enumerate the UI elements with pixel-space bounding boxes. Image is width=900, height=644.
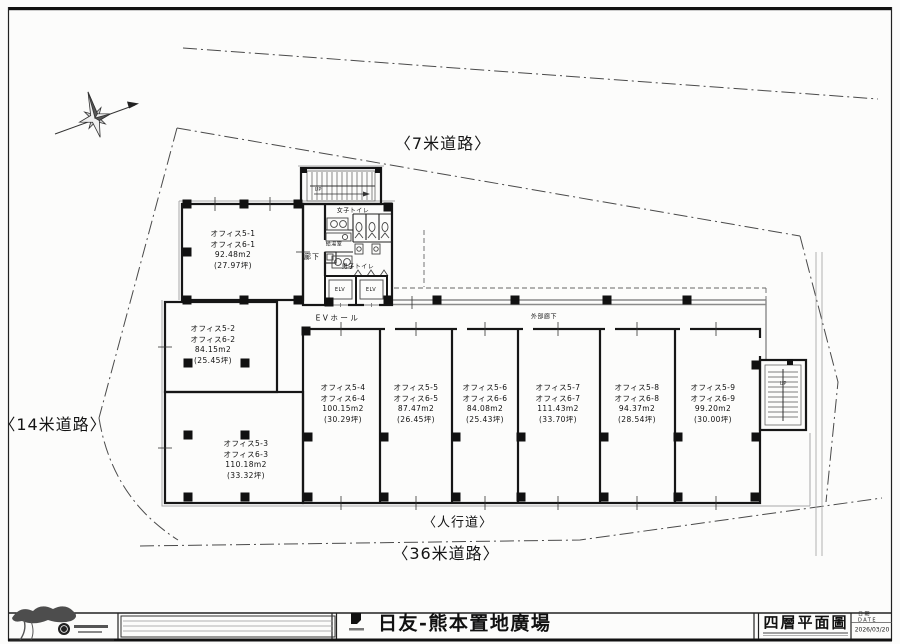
office-label-5-1: オフィス5-1 オフィス6-1 92.48m2 (27.97坪) [211, 229, 256, 271]
office-name-6: オフィス6-1 [211, 240, 256, 251]
office-label-5-6: オフィス5-6 オフィス6-6 84.08m2 (25.43坪) [463, 383, 508, 425]
compass-icon [55, 88, 139, 142]
office-name-6: オフィス6-4 [321, 394, 366, 405]
office-tsubo: (30.00坪) [691, 415, 736, 426]
date-value: 2026/03/20 [855, 627, 890, 634]
office-tsubo: (25.45坪) [191, 356, 236, 367]
office-tsubo: (33.32坪) [224, 471, 269, 482]
exterior-corridor-label: 外部廊下 [531, 312, 557, 321]
stair-up-right-label: UP [780, 381, 787, 387]
office-name-5: オフィス5-2 [191, 324, 236, 335]
office-name-6: オフィス6-7 [536, 394, 581, 405]
corridor-label: 廊下 [304, 252, 320, 262]
stairs-top [307, 171, 375, 201]
office-label-5-4: オフィス5-4 オフィス6-4 100.15m2 (30.29坪) [321, 383, 366, 425]
stair-up-top-label: UP [315, 187, 322, 193]
floor-plan-sheet: 〈7米道路〉 〈14米道路〉 〈人行道〉 〈36米道路〉 外部廊下 EVホール … [0, 0, 900, 644]
drawing-title: 四層平面圖 [763, 612, 848, 633]
office-name-5: オフィス5-9 [691, 383, 736, 394]
office-name-6: オフィス6-2 [191, 335, 236, 346]
sidewalk-label: 〈人行道〉 [423, 512, 493, 531]
office-area: 84.08m2 [463, 404, 508, 415]
office-tsubo: (28.54坪) [615, 415, 660, 426]
office-label-5-2: オフィス5-2 オフィス6-2 84.15m2 (25.45坪) [191, 324, 236, 366]
elevator-2-label: ELV [366, 287, 376, 293]
date-label: 日期 DATE [858, 611, 886, 624]
office-name-5: オフィス5-5 [394, 383, 439, 394]
elevator-1-label: ELV [335, 287, 345, 293]
office-tsubo: (33.70坪) [536, 415, 581, 426]
office-label-5-9: オフィス5-9 オフィス6-9 99.20m2 (30.00坪) [691, 383, 736, 425]
office-area: 100.15m2 [321, 404, 366, 415]
office-name-6: オフィス6-9 [691, 394, 736, 405]
road-label-south: 〈36米道路〉 [392, 540, 499, 564]
office-name-6: オフィス6-8 [615, 394, 660, 405]
mens-toilet-label: 男子トイレ [342, 262, 375, 271]
office-label-5-5: オフィス5-5 オフィス6-5 87.47m2 (26.45坪) [394, 383, 439, 425]
office-name-5: オフィス5-8 [615, 383, 660, 394]
titleblock-sketch [10, 606, 114, 640]
curb-lines [816, 252, 822, 556]
office-tsubo: (30.29坪) [321, 415, 366, 426]
office-name-6: オフィス6-5 [394, 394, 439, 405]
office-name-6: オフィス6-6 [463, 394, 508, 405]
office-name-5: オフィス5-4 [321, 383, 366, 394]
office-label-5-7: オフィス5-7 オフィス6-7 111.43m2 (33.70坪) [536, 383, 581, 425]
office-name-5: オフィス5-3 [224, 439, 269, 450]
office-tsubo: (27.97坪) [211, 261, 256, 272]
office-area: 110.18m2 [224, 460, 269, 471]
office-name-6: オフィス6-3 [224, 450, 269, 461]
stairs-right [765, 365, 801, 425]
womens-toilet-label: 女子トイレ [337, 206, 370, 215]
office-label-5-8: オフィス5-8 オフィス6-8 94.37m2 (28.54坪) [615, 383, 660, 425]
structural-columns [183, 167, 794, 502]
site-boundary-lines [99, 48, 882, 546]
office-name-5: オフィス5-6 [463, 383, 508, 394]
office-area: 84.15m2 [191, 345, 236, 356]
road-label-north: 〈7米道路〉 [395, 130, 491, 154]
office-area: 99.20m2 [691, 404, 736, 415]
office-area: 92.48m2 [211, 250, 256, 261]
office-area: 94.37m2 [615, 404, 660, 415]
hidden-dashed-lines [394, 230, 766, 300]
office-area: 111.43m2 [536, 404, 581, 415]
office-label-5-3: オフィス5-3 オフィス6-3 110.18m2 (33.32坪) [224, 439, 269, 481]
office-tsubo: (25.43坪) [463, 415, 508, 426]
office-name-5: オフィス5-1 [211, 229, 256, 240]
project-title: 日友-熊本置地廣場 [378, 609, 551, 636]
ev-hall-label: EVホール [316, 313, 361, 324]
road-label-west: 〈14米道路〉 [0, 411, 107, 435]
office-name-5: オフィス5-7 [536, 383, 581, 394]
kitchenette-label: 給湯室 [326, 241, 343, 248]
office-area: 87.47m2 [394, 404, 439, 415]
company-logo-icon [349, 613, 364, 631]
office-tsubo: (26.45坪) [394, 415, 439, 426]
